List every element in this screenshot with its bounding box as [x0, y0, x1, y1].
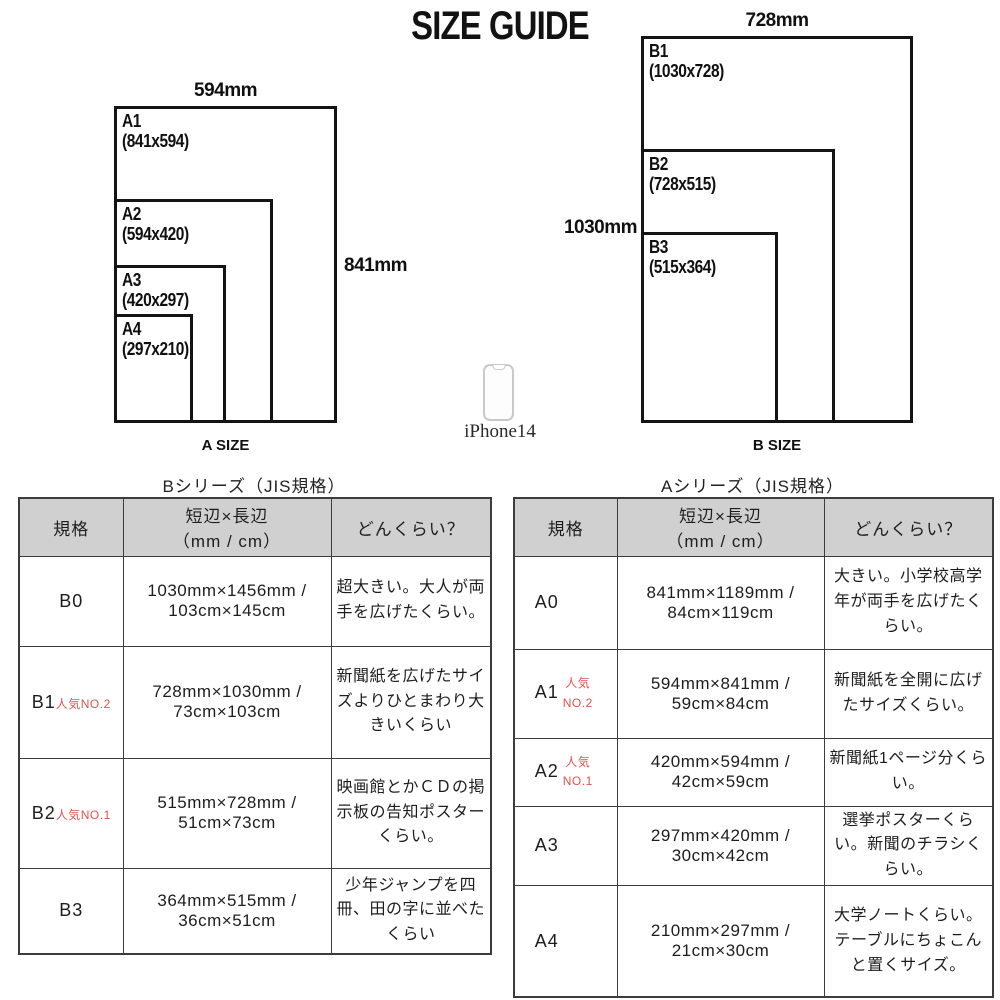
b0-size-cell: 1030mm×1456mm / 103cm×145cm	[123, 556, 331, 646]
table-row: A2人気NO.1 420mm×594mm / 42cm×59cm 新聞紙1ページ…	[514, 738, 993, 806]
iphone-label: iPhone14	[445, 421, 555, 443]
sheet-dims-b1: (1030x728)	[649, 61, 724, 81]
b-diagram-caption: B SIZE	[641, 437, 913, 454]
a0-code: A0	[535, 592, 559, 612]
a0-code-cell: A0	[514, 556, 617, 649]
b-header-size-line2: （mm / cm）	[128, 527, 327, 552]
b3-desc-cell: 少年ジャンプを四冊、田の字に並べたくらい	[331, 868, 491, 954]
sheet-name-a1: A1	[122, 111, 141, 131]
b2-code: B2	[32, 803, 56, 823]
a-diagram-caption: A SIZE	[114, 437, 337, 454]
b-size-diagram: B1 (1030x728) B2 (728x515) B3 (515x364)	[641, 36, 913, 423]
sheet-name-a3: A3	[122, 270, 141, 290]
a3-code: A3	[535, 835, 559, 855]
size-guide-page: SIZE GUIDE 594mm A1 (841x594) A2 (594x42…	[0, 0, 1000, 1000]
b1-code: B1	[32, 692, 56, 712]
a1-code: A1	[535, 682, 559, 702]
a-header-howbig: どんくらい？	[824, 498, 993, 556]
a1-badge: 人気NO.2	[559, 674, 597, 712]
a-diagram-side-dimension: 841mm	[344, 255, 407, 277]
table-row: A4 210mm×297mm / 21cm×30cm 大学ノートくらい。テーブル…	[514, 885, 993, 997]
a2-desc-cell: 新聞紙1ページ分くらい。	[824, 738, 993, 806]
table-row: B0 1030mm×1456mm / 103cm×145cm 超大きい。大人が両…	[19, 556, 491, 646]
a3-size-cell: 297mm×420mm / 30cm×42cm	[617, 806, 824, 885]
a1-code-cell: A1人気NO.2	[514, 649, 617, 738]
table-row: A3 297mm×420mm / 30cm×42cm 選挙ポスターくらい。新聞の…	[514, 806, 993, 885]
sheet-label-a4: A4 (297x210)	[122, 319, 189, 359]
b-header-size: 短辺×長辺 （mm / cm）	[123, 498, 331, 556]
a3-code-cell: A3	[514, 806, 617, 885]
a-header-size-line2: （mm / cm）	[622, 527, 820, 552]
sheet-a4: A4 (297x210)	[114, 314, 193, 423]
table-row: B1人気NO.2 728mm×1030mm / 73cm×103cm 新聞紙を広…	[19, 646, 491, 758]
a3-desc-cell: 選挙ポスターくらい。新聞のチラシくらい。	[824, 806, 993, 885]
sheet-dims-a1: (841x594)	[122, 131, 189, 151]
b-header-howbig: どんくらい？	[331, 498, 491, 556]
sheet-name-b3: B3	[649, 237, 668, 257]
b1-desc-cell: 新聞紙を広げたサイズよりひとまわり大きいくらい	[331, 646, 491, 758]
a2-badge: 人気NO.1	[559, 753, 597, 791]
b2-code-cell: B2人気NO.1	[19, 758, 123, 868]
sheet-name-a4: A4	[122, 319, 141, 339]
a-header-kikaku: 規格	[514, 498, 617, 556]
sheet-label-a3: A3 (420x297)	[122, 270, 189, 310]
sheet-dims-a3: (420x297)	[122, 290, 189, 310]
sheet-dims-b2: (728x515)	[649, 174, 716, 194]
b0-code: B0	[59, 591, 83, 611]
sheet-label-b1: B1 (1030x728)	[649, 41, 724, 81]
a-size-diagram: A1 (841x594) A2 (594x420) A3 (420x297) A…	[114, 106, 337, 423]
a2-code: A2	[535, 761, 559, 781]
a2-code-cell: A2人気NO.1	[514, 738, 617, 806]
a4-code: A4	[535, 931, 559, 951]
b-series-header-row: 規格 短辺×長辺 （mm / cm） どんくらい？	[19, 498, 491, 556]
b1-code-cell: B1人気NO.2	[19, 646, 123, 758]
b3-code: B3	[59, 900, 83, 920]
sheet-dims-b3: (515x364)	[649, 257, 716, 277]
b3-size-cell: 364mm×515mm / 36cm×51cm	[123, 868, 331, 954]
iphone-notch	[492, 365, 505, 370]
a1-desc-cell: 新聞紙を全開に広げたサイズくらい。	[824, 649, 993, 738]
sheet-name-b2: B2	[649, 154, 668, 174]
sheet-dims-a4: (297x210)	[122, 339, 189, 359]
a4-code-cell: A4	[514, 885, 617, 997]
b-diagram-top-dimension: 728mm	[641, 10, 913, 32]
table-row: B3 364mm×515mm / 36cm×51cm 少年ジャンプを四冊、田の字…	[19, 868, 491, 954]
table-row: A0 841mm×1189mm / 84cm×119cm 大きい。小学校高学年が…	[514, 556, 993, 649]
b2-desc-cell: 映画館とかＣＤの掲示板の告知ポスターくらい。	[331, 758, 491, 868]
b3-code-cell: B3	[19, 868, 123, 954]
b1-size-cell: 728mm×1030mm / 73cm×103cm	[123, 646, 331, 758]
b-header-size-line1: 短辺×長辺	[128, 502, 327, 527]
b2-size-cell: 515mm×728mm / 51cm×73cm	[123, 758, 331, 868]
b1-badge: 人気NO.2	[56, 697, 111, 711]
sheet-name-a2: A2	[122, 204, 141, 224]
sheet-label-b2: B2 (728x515)	[649, 154, 716, 194]
a-header-size: 短辺×長辺 （mm / cm）	[617, 498, 824, 556]
b0-desc-cell: 超大きい。大人が両手を広げたくらい。	[331, 556, 491, 646]
b-diagram-side-dimension: 1030mm	[555, 217, 637, 239]
sheet-dims-a2: (594x420)	[122, 224, 189, 244]
sheet-label-a2: A2 (594x420)	[122, 204, 189, 244]
sheet-name-b1: B1	[649, 41, 668, 61]
table-row: B2人気NO.1 515mm×728mm / 51cm×73cm 映画館とかＣＤ…	[19, 758, 491, 868]
a4-desc-cell: 大学ノートくらい。テーブルにちょこんと置くサイズ。	[824, 885, 993, 997]
a0-desc-cell: 大きい。小学校高学年が両手を広げたくらい。	[824, 556, 993, 649]
table-row: A1人気NO.2 594mm×841mm / 59cm×84cm 新聞紙を全開に…	[514, 649, 993, 738]
iphone-icon	[483, 364, 514, 421]
a4-size-cell: 210mm×297mm / 21cm×30cm	[617, 885, 824, 997]
a1-size-cell: 594mm×841mm / 59cm×84cm	[617, 649, 824, 738]
b0-code-cell: B0	[19, 556, 123, 646]
sheet-b3: B3 (515x364)	[641, 232, 778, 423]
b-series-table: 規格 短辺×長辺 （mm / cm） どんくらい？ B0 1030mm×1456…	[18, 497, 492, 955]
a0-size-cell: 841mm×1189mm / 84cm×119cm	[617, 556, 824, 649]
b2-badge: 人気NO.1	[56, 808, 111, 822]
a2-size-cell: 420mm×594mm / 42cm×59cm	[617, 738, 824, 806]
a-diagram-top-dimension: 594mm	[114, 80, 337, 102]
b-header-kikaku: 規格	[19, 498, 123, 556]
a-series-table-title: Aシリーズ（JIS規格）	[513, 472, 992, 497]
a-series-header-row: 規格 短辺×長辺 （mm / cm） どんくらい？	[514, 498, 993, 556]
a-series-table: 規格 短辺×長辺 （mm / cm） どんくらい？ A0 841mm×1189m…	[513, 497, 994, 998]
sheet-label-b3: B3 (515x364)	[649, 237, 716, 277]
b-series-table-title: Bシリーズ（JIS規格）	[18, 472, 490, 497]
sheet-label-a1: A1 (841x594)	[122, 111, 189, 151]
a-header-size-line1: 短辺×長辺	[622, 502, 820, 527]
